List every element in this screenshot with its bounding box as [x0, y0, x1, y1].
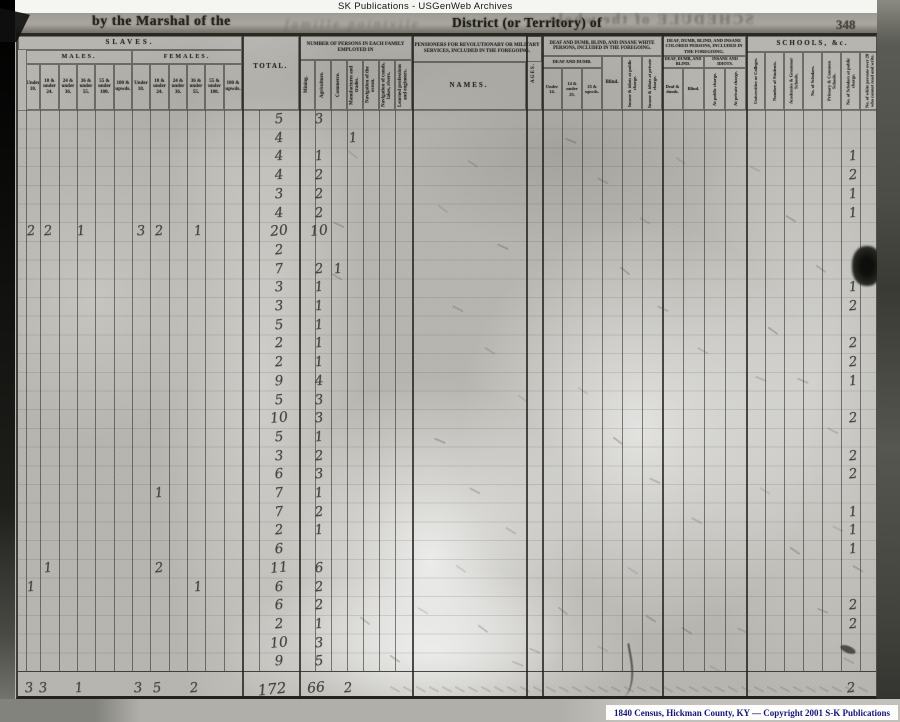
white-deaf-25up-col: 25 & upwds.: [582, 68, 602, 110]
hw-agriculture: 1: [314, 298, 324, 315]
bleedthrough-schedule-text: SCHEDULE of the whole: [548, 12, 754, 29]
col-navigation-ocean: Navigation of the ocean.: [363, 60, 379, 110]
column-line: [363, 110, 364, 671]
female-age-col-55-100: 55 & under 100.: [205, 64, 224, 110]
hw-total: 3: [274, 298, 284, 315]
males-group-label: MALES.: [26, 50, 132, 64]
male-age-col-36-55: 36 & under 55.: [77, 64, 95, 110]
hw-total: 5: [274, 428, 284, 445]
column-line: [150, 110, 151, 671]
section-line: [412, 36, 414, 699]
pensioners-section-title: PENSIONERS FOR REVOLUTIONARY OR MILITARY…: [412, 36, 542, 62]
hw-agriculture: 1: [314, 428, 324, 445]
scan-bottom-strip: 1840 Census, Hickman County, KY — Copyri…: [0, 699, 900, 722]
copyright-text: 1840 Census, Hickman County, KY — Copyri…: [614, 708, 890, 718]
hw-total: 6: [274, 541, 284, 558]
hw-slave-f_36_55: 1: [193, 223, 203, 240]
section-line: [242, 36, 244, 699]
hw-agriculture: 1: [314, 522, 324, 539]
column-line: [803, 110, 804, 671]
hw-total: 2: [274, 522, 284, 539]
hw-agriculture: 1: [314, 485, 324, 502]
totals-bleed-tick: [754, 686, 764, 692]
totals-bleed-tick: [559, 686, 569, 692]
totals-bleed-tick: [702, 686, 712, 692]
hw-literacy: 1: [848, 204, 858, 221]
colored-blind-col: Blind.: [683, 68, 704, 110]
male-age-col-55-100: 55 & under 100.: [95, 64, 114, 110]
hw-slave-f_10_24: 2: [154, 223, 164, 240]
hw-agriculture: 3: [314, 391, 324, 408]
handwritten-district-name: famille pointvile: [285, 16, 421, 32]
col-learned-professions: Learned professions and engineers.: [395, 60, 412, 110]
hw-total: 2: [274, 615, 284, 632]
hw-total-total: 172: [257, 679, 287, 700]
totals-bleed-tick: [468, 686, 478, 692]
hw-total-f_10_24: 5: [152, 680, 162, 697]
hw-literacy: 2: [848, 335, 858, 352]
totals-bleed-tick: [806, 686, 816, 692]
hw-total: 7: [274, 260, 284, 277]
hw-total: 10: [269, 634, 288, 652]
hw-slave-f_10_24: 2: [154, 559, 164, 576]
employment-section-title: NUMBER OF PERSONS IN EACH FAMILY EMPLOYE…: [299, 36, 412, 60]
hw-agriculture: 2: [314, 503, 324, 520]
column-line: [77, 110, 78, 671]
totals-bleed-tick: [650, 686, 660, 692]
section-line: [299, 36, 301, 699]
hw-slave-f_36_55: 1: [193, 578, 203, 595]
white-insane-private-col: Insane & idiots at private charge.: [642, 56, 662, 110]
column-line: [169, 110, 170, 671]
col-navigation-canals: Navigation of canals, lakes, rivers.: [379, 60, 395, 110]
white-deaf-under14-col: Under 14.: [542, 68, 562, 110]
hw-agriculture: 1: [314, 354, 324, 371]
totals-bleed-tick: [637, 686, 647, 692]
hw-manufactures: 1: [348, 129, 358, 146]
hw-total: 2: [274, 241, 284, 258]
hw-agriculture: 3: [314, 111, 324, 128]
hw-slave-m_24_36: 1: [76, 223, 86, 240]
column-line: [395, 110, 396, 671]
pensioner-names-column: NAMES.: [412, 62, 526, 110]
totals-bleed-tick: [663, 686, 673, 692]
hw-total-agriculture: 66: [306, 679, 325, 697]
colored-deaf-group: DEAF, DUMB, AND BLIND.: [662, 56, 704, 68]
totals-bleed-tick: [494, 686, 504, 692]
column-line: [259, 110, 260, 671]
hw-total-m_24_36: 1: [74, 680, 84, 697]
column-line: [683, 110, 684, 671]
totals-bleed-tick: [598, 686, 608, 692]
hw-literacy: 2: [848, 167, 858, 184]
hw-total: 5: [274, 111, 284, 128]
hw-total: 4: [274, 129, 284, 146]
hw-total: 7: [274, 503, 284, 520]
totals-bleed-tick: [767, 686, 777, 692]
hw-slave-m_under10: 1: [26, 578, 36, 595]
hw-agriculture: 2: [314, 204, 324, 221]
hw-total-m_10_24: 3: [38, 680, 48, 697]
hw-literacy: 1: [848, 185, 858, 202]
column-line: [40, 110, 41, 671]
slaves-section-title: SLAVES.: [18, 36, 242, 50]
col-public-scholars: No. of Scholars at public charge.: [841, 52, 860, 110]
hw-literacy: 2: [848, 298, 858, 315]
hw-slave-f_under10: 3: [136, 223, 146, 240]
form-header: by the Marshal of the famille pointvile …: [0, 13, 900, 33]
hw-literacy: 2: [848, 447, 858, 464]
hw-literacy: 1: [848, 541, 858, 558]
hw-total: 4: [274, 148, 284, 165]
hw-total: 7: [274, 485, 284, 502]
totals-bleed-tick: [715, 686, 725, 692]
scan-top-strip: SK Publications - USGenWeb Archives: [0, 0, 900, 13]
hw-total: 3: [274, 447, 284, 464]
column-line: [822, 110, 823, 671]
hw-agriculture: 2: [314, 185, 324, 202]
column-line: [331, 110, 332, 671]
hw-total-manufactures: 2: [343, 680, 353, 697]
hw-slave-m_10_24: 2: [43, 223, 53, 240]
hw-slave-m_10_24: 1: [43, 559, 53, 576]
hw-total-f_under10: 3: [133, 680, 143, 697]
hw-total: 9: [274, 653, 284, 670]
hw-total: 3: [274, 279, 284, 296]
white-insane-public-col: Insane & idiots at public charge.: [622, 56, 642, 110]
column-line: [642, 110, 643, 671]
schools-section-title: SCHOOLS, &c.: [746, 36, 879, 52]
column-line: [114, 110, 115, 671]
column-line: [860, 110, 861, 671]
colored-insane-group: INSANE AND IDIOTS.: [704, 56, 746, 68]
column-line: [379, 110, 380, 671]
totals-bleed-tick: [728, 686, 738, 692]
hw-agriculture: 3: [314, 466, 324, 483]
totals-bleed-tick: [572, 686, 582, 692]
hw-agriculture: 3: [314, 634, 324, 651]
hw-total: 5: [274, 316, 284, 333]
hw-slave-f_10_24: 1: [154, 485, 164, 502]
copyright-footer: 1840 Census, Hickman County, KY — Copyri…: [606, 705, 898, 720]
column-line: [347, 110, 348, 671]
scanner-edge-right: [877, 0, 900, 722]
hw-total: 10: [269, 409, 288, 427]
female-age-col-24-36: 24 & under 36.: [169, 64, 187, 110]
hw-literacy: 2: [848, 354, 858, 371]
female-age-col-36-55: 36 & under 55.: [187, 64, 205, 110]
hw-total: 4: [274, 204, 284, 221]
hw-literacy: 2: [848, 466, 858, 483]
hw-total: 3: [274, 185, 284, 202]
column-line: [224, 110, 225, 671]
col-mining: Mining.: [299, 60, 315, 110]
column-line: [95, 110, 96, 671]
hw-literacy: 1: [848, 372, 858, 389]
printed-header-prefix: by the Marshal of the: [92, 14, 231, 30]
column-line: [725, 110, 726, 671]
female-age-col-100up: 100 & upwds.: [224, 64, 242, 110]
totals-bleed-tick: [442, 686, 452, 692]
colored-insane-public-col: At public charge.: [704, 68, 725, 110]
column-line: [765, 110, 766, 671]
hw-agriculture: 1: [314, 316, 324, 333]
column-line: [205, 110, 206, 671]
column-line: [622, 110, 623, 671]
section-line: [526, 36, 528, 699]
totals-bleed-tick: [793, 686, 803, 692]
hw-literacy: 1: [848, 522, 858, 539]
pensioner-ages-column: AGES.: [526, 36, 542, 110]
column-line: [187, 110, 188, 671]
column-line: [562, 110, 563, 671]
col-agriculture: Agriculture.: [315, 60, 331, 110]
column-line: [841, 110, 842, 671]
totals-bleed-tick: [455, 686, 465, 692]
hw-total: 6: [274, 597, 284, 614]
col-academy-scholars: No. of Scholars.: [803, 52, 822, 110]
column-line: [602, 110, 603, 671]
hw-agriculture: 1: [314, 335, 324, 352]
hw-total: 2: [274, 354, 284, 371]
female-age-col-10-24: 10 & under 24.: [150, 64, 169, 110]
scanner-edge-left: [0, 0, 15, 722]
census-scan-page: SK Publications - USGenWeb Archives by t…: [0, 0, 900, 722]
hw-agriculture: 5: [314, 653, 324, 670]
col-universities: Universities or Colleges.: [746, 52, 765, 110]
hw-agriculture: 4: [314, 372, 324, 389]
col-commerce: Commerce.: [331, 60, 347, 110]
hw-agriculture: 2: [314, 597, 324, 614]
col-primary-schools: Primary & Common Schools.: [822, 52, 841, 110]
col-academies: Academies & Grammar Schools.: [784, 52, 803, 110]
totals-bleed-tick: [585, 686, 595, 692]
hw-agriculture: 6: [314, 559, 324, 576]
females-group-label: FEMALES.: [132, 50, 242, 64]
hw-agriculture: 1: [314, 148, 324, 165]
totals-bleed-tick: [390, 686, 400, 692]
male-age-col-under10: Under 10.: [26, 64, 40, 110]
hw-literacy: 1: [848, 148, 858, 165]
hw-total: 6: [274, 578, 284, 595]
hw-total: 5: [274, 391, 284, 408]
total-column-header: TOTAL.: [242, 36, 299, 110]
section-line: [662, 36, 664, 699]
page-number: 348: [836, 17, 856, 33]
section-line: [746, 36, 748, 699]
colored-impaired-section-title: DEAF, DUMB, BLIND, AND INSANE COLORED PE…: [662, 36, 746, 56]
hw-total-m_under10: 3: [24, 680, 34, 697]
hw-literacy: 2: [848, 597, 858, 614]
column-line: [132, 110, 133, 671]
column-line: [59, 110, 60, 671]
hw-total: 6: [274, 466, 284, 483]
totals-bleed-tick: [780, 686, 790, 692]
male-age-col-24-36: 24 & under 36.: [59, 64, 77, 110]
hw-total: 2: [274, 335, 284, 352]
section-line: [542, 36, 544, 699]
archive-watermark: SK Publications - USGenWeb Archives: [338, 1, 513, 12]
hw-literacy: 1: [848, 503, 858, 520]
hw-agriculture: 2: [314, 260, 324, 277]
white-impaired-section-title: DEAF AND DUMB, BLIND, AND INSANE WHITE P…: [542, 36, 662, 56]
hw-agriculture: 2: [314, 578, 324, 595]
hw-agriculture: 2: [314, 447, 324, 464]
totals-bleed-tick: [507, 686, 517, 692]
column-line: [704, 110, 705, 671]
hw-total: 11: [269, 559, 288, 577]
hw-literacy: 2: [848, 615, 858, 632]
hw-total: 9: [274, 372, 284, 389]
column-line: [784, 110, 785, 671]
col-manufactures: Manufactures and trades.: [347, 60, 363, 110]
hw-agriculture: 1: [314, 615, 324, 632]
hw-agriculture: 3: [314, 410, 324, 427]
census-form-table: SLAVES. MALES. FEMALES. Under 10. 10 & u…: [16, 33, 878, 699]
hw-total-f_36_55: 2: [189, 680, 199, 697]
totals-bleed-tick: [481, 686, 491, 692]
colored-deaf-dumb-col: Deaf & dumb.: [662, 68, 683, 110]
totals-bleed-tick: [676, 686, 686, 692]
totals-bleed-tick: [546, 686, 556, 692]
hw-literacy: 2: [848, 410, 858, 427]
hw-total: 4: [274, 167, 284, 184]
totals-bleed-tick: [689, 686, 699, 692]
totals-bleed-tick: [858, 686, 868, 692]
hw-slave-m_under10: 2: [26, 223, 36, 240]
hw-agriculture: 2: [314, 167, 324, 184]
white-deaf-14-25-col: 14 & under 25.: [562, 68, 582, 110]
hw-agriculture: 10: [309, 222, 328, 240]
white-blind-col: Blind.: [602, 56, 622, 110]
totals-bleed-tick: [429, 686, 439, 692]
female-age-col-under10: Under 10.: [132, 64, 150, 110]
totals-bleed-tick: [832, 686, 842, 692]
hw-total: 20: [269, 222, 288, 240]
totals-bleed-tick: [416, 686, 426, 692]
male-age-col-10-24: 10 & under 24.: [40, 64, 59, 110]
white-deaf-dumb-group: DEAF AND DUMB.: [542, 56, 602, 68]
totals-bleed-tick: [520, 686, 530, 692]
hw-agriculture: 1: [314, 279, 324, 296]
colored-insane-private-col: At private charge.: [725, 68, 746, 110]
col-students: Number of Students.: [765, 52, 784, 110]
totals-bleed-tick: [819, 686, 829, 692]
male-age-col-100up: 100 & upwds.: [114, 64, 132, 110]
